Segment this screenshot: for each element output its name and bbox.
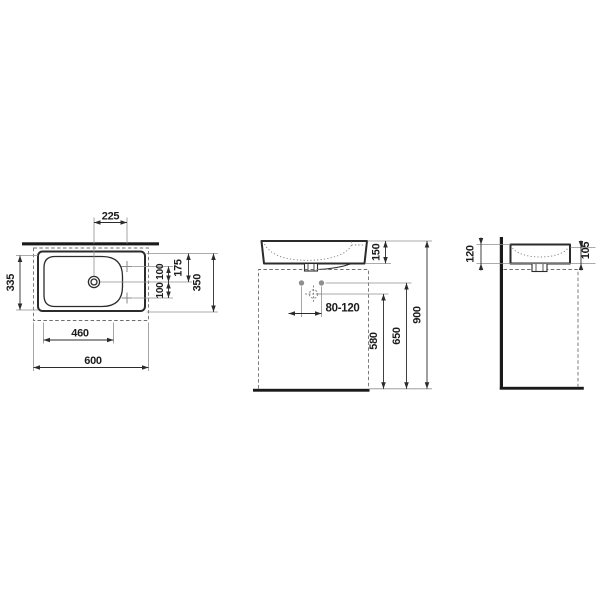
- wall-line-side-view: [500, 237, 503, 390]
- dim-175: 175: [173, 254, 189, 283]
- dim-80-120: 80-120: [289, 303, 360, 315]
- dim-460-label: 460: [71, 328, 89, 340]
- dim-600-label: 600: [84, 355, 102, 367]
- dim-105-label: 105: [580, 242, 592, 260]
- dim-900-label: 900: [412, 306, 424, 324]
- dim-580: 580: [368, 294, 384, 389]
- dim-225-label: 225: [102, 211, 120, 223]
- trap-symbol-side: [532, 264, 547, 272]
- floor-line-front-view: [253, 389, 370, 392]
- dim-100-upper-label: 100: [155, 263, 166, 280]
- dim-175-label: 175: [173, 259, 185, 277]
- dim-120-label: 120: [465, 245, 477, 263]
- side-view: 120 105: [465, 237, 596, 390]
- dim-350-label: 350: [192, 274, 204, 292]
- dim-335-label: 335: [5, 274, 17, 292]
- dim-900: 900: [412, 241, 428, 389]
- dim-335: 335: [5, 256, 20, 311]
- pedestal-dashed-outline: [504, 270, 579, 387]
- technical-drawing-page: 225 335 100 100 175 350 460 600: [0, 0, 600, 600]
- dim-460: 460: [44, 328, 114, 341]
- fixing-hole-dots: [299, 280, 324, 285]
- dim-350: 350: [192, 254, 214, 313]
- dim-100-upper: 100: [155, 263, 169, 282]
- dim-80-120-label: 80-120: [326, 303, 360, 315]
- wall-line-top-view: [22, 242, 159, 245]
- dim-150: 150: [371, 241, 386, 264]
- basin-side-outline: [511, 245, 571, 264]
- dim-100-lower-label: 100: [155, 282, 166, 299]
- dim-100-lower: 100: [155, 282, 169, 299]
- dim-120: 120: [465, 238, 482, 271]
- dim-580-label: 580: [368, 332, 380, 350]
- front-view: 150 80-120 580 650 900: [253, 241, 432, 392]
- dim-650: 650: [391, 283, 407, 389]
- dim-105: 105: [580, 241, 592, 271]
- dim-650-label: 650: [391, 327, 403, 345]
- dim-600: 600: [34, 355, 149, 368]
- dim-225: 225: [94, 211, 127, 223]
- top-view: 225 335 100 100 175 350 460 600: [5, 211, 218, 372]
- floor-line-side-view: [500, 387, 584, 390]
- dim-150-label: 150: [371, 243, 383, 261]
- technical-drawing: 225 335 100 100 175 350 460 600: [0, 0, 600, 600]
